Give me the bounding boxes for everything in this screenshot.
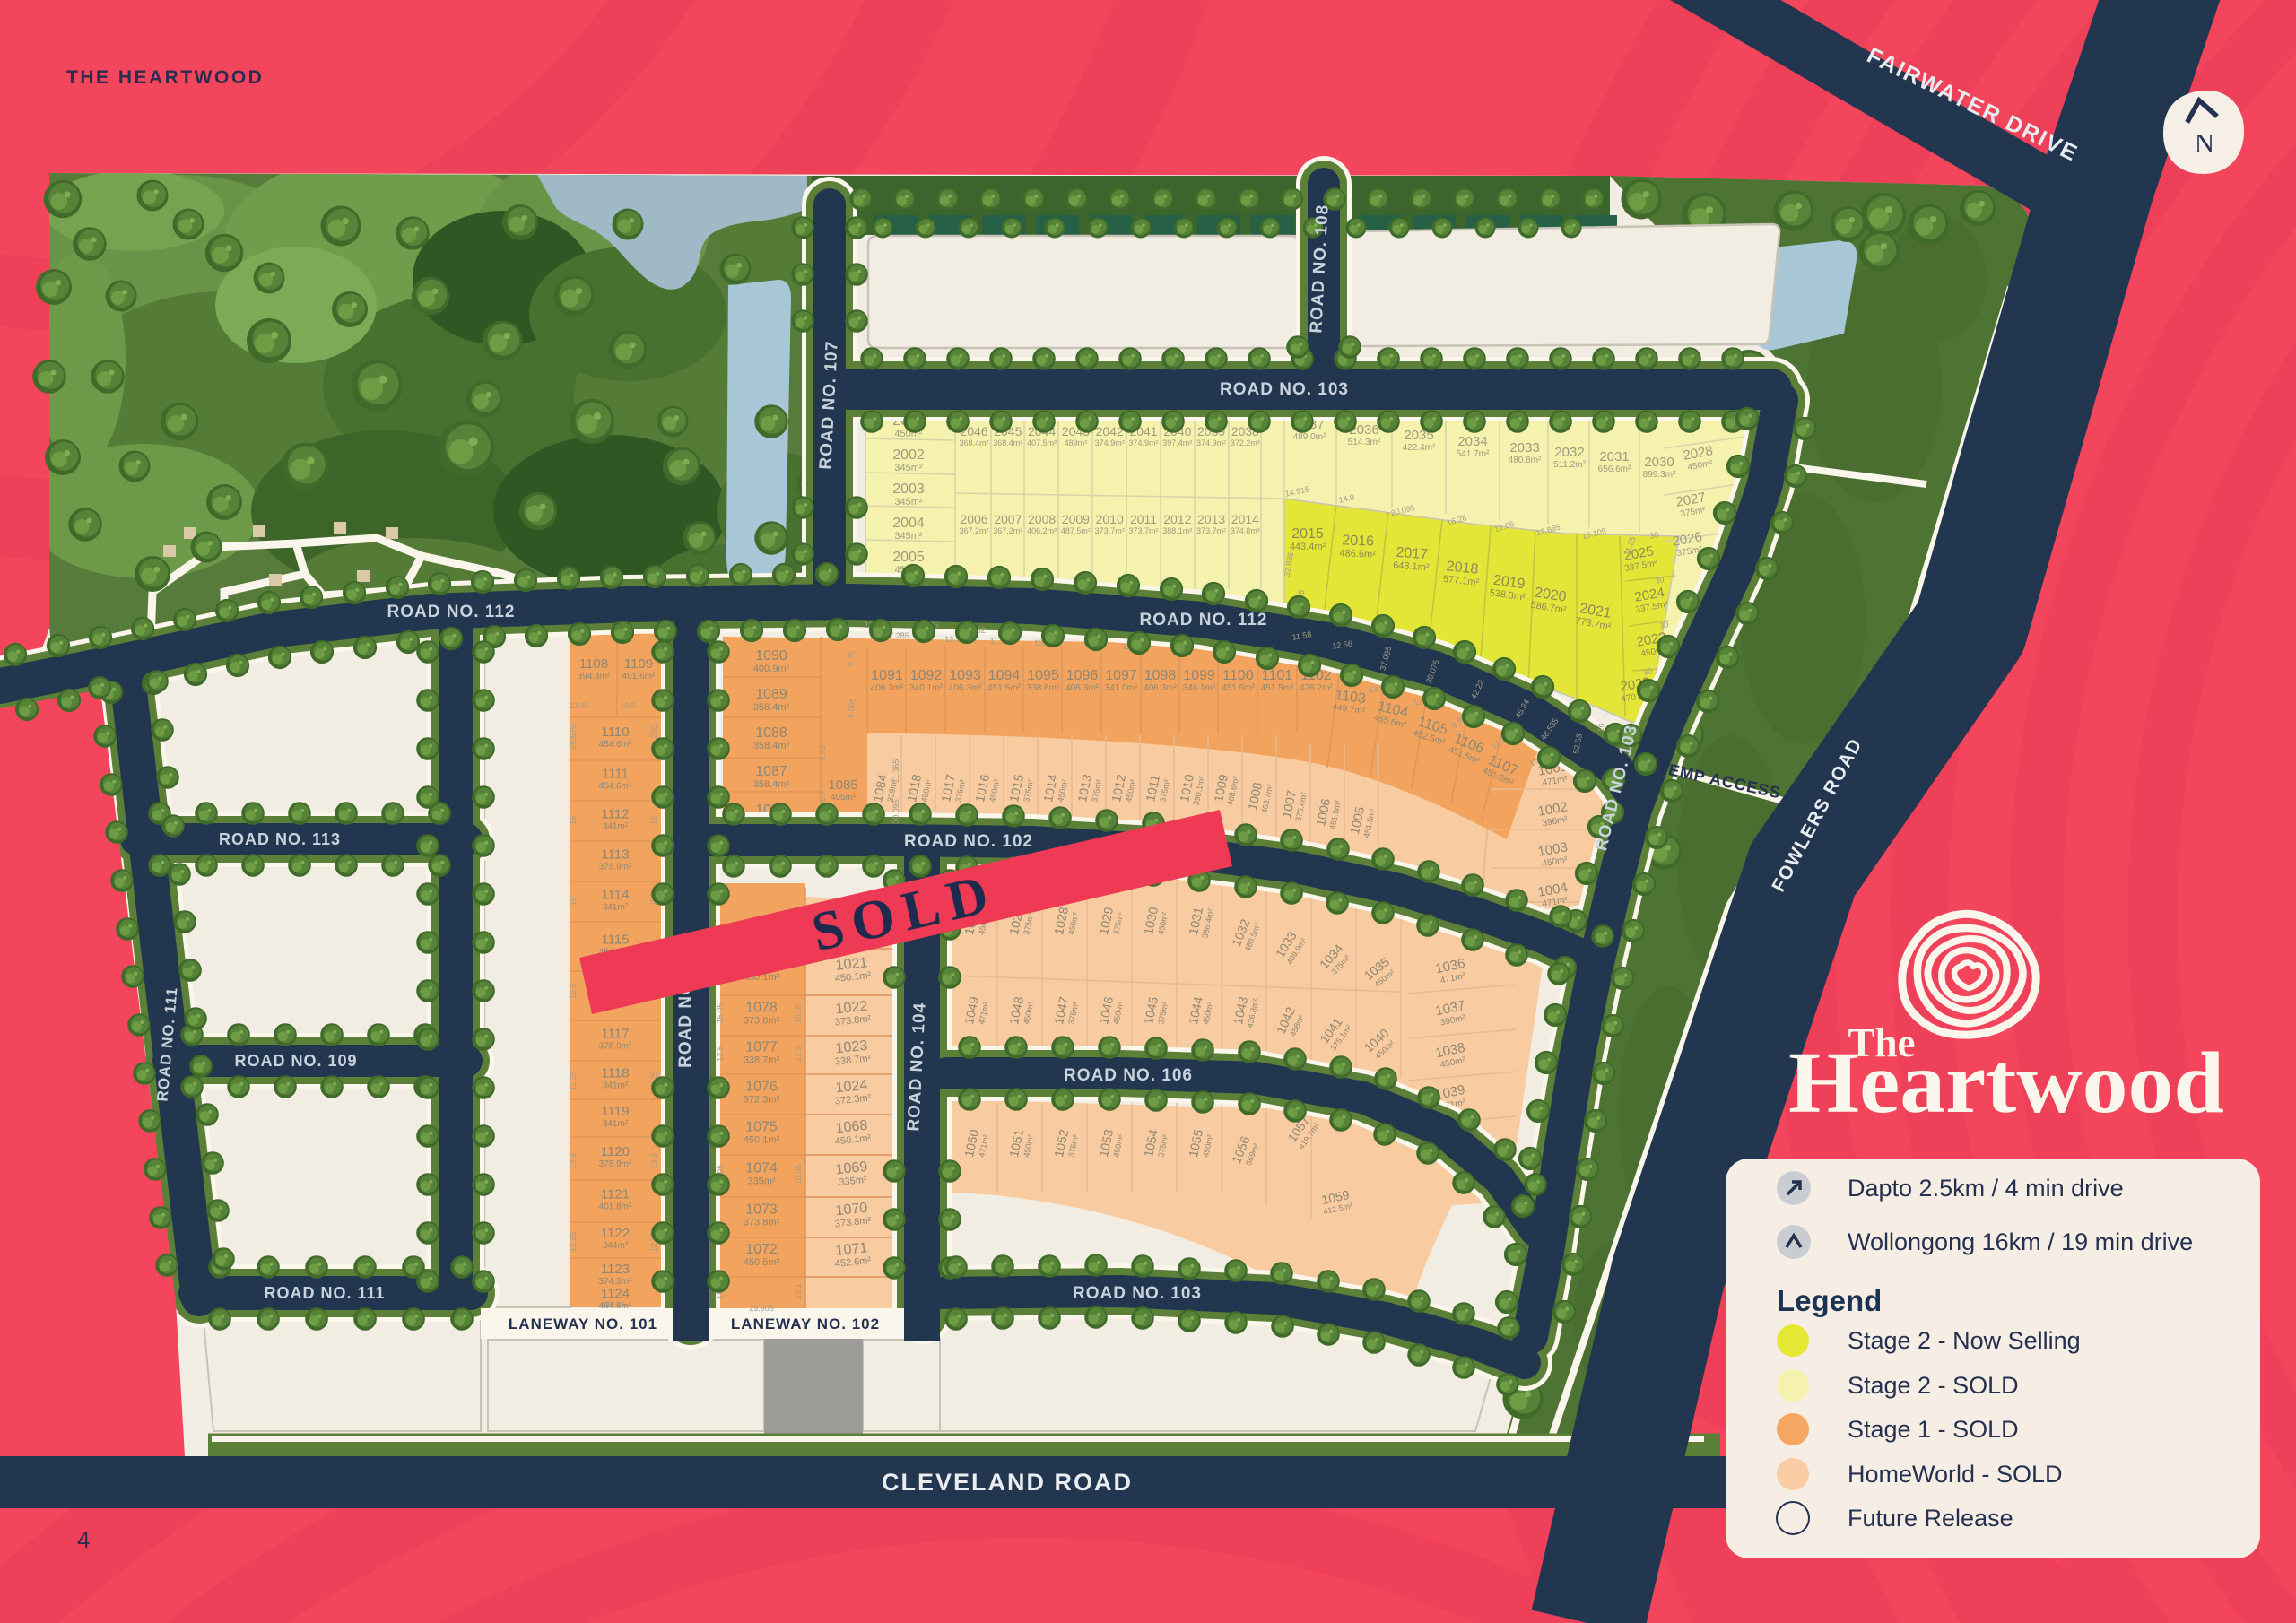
svg-text:368.4m²: 368.4m² xyxy=(959,438,988,447)
svg-text:374.9m²: 374.9m² xyxy=(1095,438,1125,447)
svg-text:1094: 1094 xyxy=(988,668,1021,683)
svg-text:THE HEARTWOOD: THE HEARTWOOD xyxy=(66,67,264,88)
svg-text:2034: 2034 xyxy=(1457,434,1487,449)
svg-text:514.3m²: 514.3m² xyxy=(1348,438,1381,447)
svg-text:1072: 1072 xyxy=(745,1242,778,1257)
svg-text:511.2m²: 511.2m² xyxy=(1553,460,1587,470)
svg-text:373.8m²: 373.8m² xyxy=(744,1218,780,1228)
svg-text:ROAD NO. 102: ROAD NO. 102 xyxy=(904,832,1033,851)
svg-text:1090: 1090 xyxy=(755,648,787,664)
svg-text:Stage 1 - SOLD: Stage 1 - SOLD xyxy=(1848,1416,2019,1443)
svg-text:400.9m²: 400.9m² xyxy=(753,664,790,674)
svg-text:13.81: 13.81 xyxy=(570,701,590,710)
svg-text:1119: 1119 xyxy=(601,1104,629,1119)
svg-text:368.4m²: 368.4m² xyxy=(993,438,1022,447)
svg-text:HomeWorld - SOLD: HomeWorld - SOLD xyxy=(1848,1461,2063,1488)
svg-text:406.3m²: 406.3m² xyxy=(1144,683,1177,693)
svg-text:12.5: 12.5 xyxy=(716,1046,725,1062)
svg-text:N: N xyxy=(2195,127,2214,159)
svg-text:401.8m²: 401.8m² xyxy=(599,1202,632,1212)
svg-text:340.1m²: 340.1m² xyxy=(909,683,943,693)
svg-text:CLEVELAND ROAD: CLEVELAND ROAD xyxy=(882,1469,1133,1496)
svg-text:341.0m²: 341.0m² xyxy=(1105,683,1138,693)
svg-text:Dapto 2.5km / 4 min drive: Dapto 2.5km / 4 min drive xyxy=(1848,1175,2124,1202)
svg-text:1123: 1123 xyxy=(601,1262,630,1277)
svg-text:338.7m²: 338.7m² xyxy=(744,1055,780,1066)
svg-text:450.5m²: 450.5m² xyxy=(744,1257,780,1268)
svg-text:341m²: 341m² xyxy=(603,1119,629,1129)
svg-text:12.5: 12.5 xyxy=(794,1046,803,1062)
svg-text:1122: 1122 xyxy=(601,1226,630,1241)
svg-text:341m²: 341m² xyxy=(603,822,629,832)
svg-text:ROAD NO. 112: ROAD NO. 112 xyxy=(1140,611,1268,629)
svg-text:372.3m²: 372.3m² xyxy=(744,1095,780,1106)
svg-text:Future Release: Future Release xyxy=(1848,1505,2013,1532)
svg-text:656.6m²: 656.6m² xyxy=(1598,464,1631,474)
svg-text:30.31: 30.31 xyxy=(605,1300,626,1309)
svg-text:1117: 1117 xyxy=(601,1027,629,1042)
svg-text:ROAD NO. 109: ROAD NO. 109 xyxy=(234,1052,357,1070)
svg-text:426.2m²: 426.2m² xyxy=(1300,683,1333,693)
svg-text:345m²: 345m² xyxy=(894,463,923,473)
svg-text:16.5: 16.5 xyxy=(620,701,636,710)
svg-text:2031: 2031 xyxy=(1599,449,1629,464)
svg-text:30: 30 xyxy=(1642,666,1653,677)
svg-text:1114: 1114 xyxy=(601,888,629,903)
svg-text:15: 15 xyxy=(569,897,578,906)
svg-text:451.5m²: 451.5m² xyxy=(1222,683,1255,693)
svg-text:345m²: 345m² xyxy=(894,497,923,508)
svg-text:15: 15 xyxy=(649,816,658,825)
svg-text:ROAD NO. 106: ROAD NO. 106 xyxy=(1064,1066,1193,1085)
svg-text:Wollongong 16km / 19 min drive: Wollongong 16km / 19 min drive xyxy=(1848,1228,2193,1255)
svg-text:4: 4 xyxy=(77,1526,90,1553)
svg-text:358.4m²: 358.4m² xyxy=(753,741,790,751)
svg-text:422.4m²: 422.4m² xyxy=(1403,443,1436,453)
svg-text:12.35: 12.35 xyxy=(569,1232,578,1253)
svg-text:1124: 1124 xyxy=(601,1287,630,1302)
svg-text:1115: 1115 xyxy=(601,933,629,948)
svg-text:15.05: 15.05 xyxy=(794,1003,803,1024)
svg-text:1113: 1113 xyxy=(601,847,629,863)
svg-text:541.7m²: 541.7m² xyxy=(1457,449,1490,459)
svg-text:358.4m²: 358.4m² xyxy=(753,702,790,713)
svg-text:450.1m²: 450.1m² xyxy=(744,1135,780,1146)
svg-text:15.1: 15.1 xyxy=(794,1283,803,1299)
svg-text:454.6m²: 454.6m² xyxy=(599,782,632,792)
svg-text:2016: 2016 xyxy=(1342,533,1374,549)
svg-text:480.8m²: 480.8m² xyxy=(1509,456,1542,465)
svg-text:2007: 2007 xyxy=(994,512,1022,526)
svg-text:1077: 1077 xyxy=(745,1040,778,1055)
svg-text:1118: 1118 xyxy=(601,1066,629,1081)
svg-text:406.3m²: 406.3m² xyxy=(871,683,904,693)
svg-text:13.3: 13.3 xyxy=(569,1153,578,1169)
svg-text:ROAD NO. 103: ROAD NO. 103 xyxy=(1073,1284,1202,1303)
svg-text:2005: 2005 xyxy=(892,550,925,565)
svg-text:1109: 1109 xyxy=(624,656,653,672)
svg-text:2014: 2014 xyxy=(1231,512,1259,526)
svg-text:15: 15 xyxy=(569,816,578,825)
svg-text:1089: 1089 xyxy=(755,687,787,702)
svg-text:30: 30 xyxy=(1654,575,1665,586)
svg-text:1110: 1110 xyxy=(601,725,629,740)
svg-text:LANEWAY NO. 101: LANEWAY NO. 101 xyxy=(509,1315,657,1332)
svg-text:397.4m²: 397.4m² xyxy=(1162,438,1192,447)
svg-text:489.0m²: 489.0m² xyxy=(1293,432,1326,442)
svg-text:373.7m²: 373.7m² xyxy=(1196,526,1226,535)
svg-text:367.2m²: 367.2m² xyxy=(993,526,1022,535)
svg-text:30: 30 xyxy=(1648,530,1659,541)
svg-text:443.4m²: 443.4m² xyxy=(1290,542,1326,552)
svg-text:374.9m²: 374.9m² xyxy=(1128,438,1158,447)
svg-text:1112: 1112 xyxy=(601,807,629,822)
svg-text:358.4m²: 358.4m² xyxy=(753,779,790,790)
svg-text:2015: 2015 xyxy=(1291,526,1324,542)
svg-text:29.905: 29.905 xyxy=(749,1304,774,1313)
svg-text:1096: 1096 xyxy=(1066,668,1099,683)
svg-text:15.05: 15.05 xyxy=(716,1003,725,1024)
svg-text:2009: 2009 xyxy=(1062,512,1090,526)
svg-text:2004: 2004 xyxy=(892,516,925,531)
svg-text:11.25: 11.25 xyxy=(569,1071,578,1090)
svg-text:2003: 2003 xyxy=(892,482,925,497)
svg-text:341m²: 341m² xyxy=(603,903,629,913)
svg-text:2013: 2013 xyxy=(1197,512,1225,526)
svg-text:30: 30 xyxy=(1658,620,1669,630)
svg-text:406.3m²: 406.3m² xyxy=(949,683,982,693)
svg-text:1098: 1098 xyxy=(1144,668,1177,683)
svg-text:407.5m²: 407.5m² xyxy=(1027,438,1057,447)
svg-text:LANEWAY NO. 102: LANEWAY NO. 102 xyxy=(731,1315,880,1332)
svg-text:2012: 2012 xyxy=(1163,512,1191,526)
svg-text:486.6m²: 486.6m² xyxy=(1339,548,1376,560)
svg-text:394.4m²: 394.4m² xyxy=(578,672,611,681)
svg-text:Heartwood: Heartwood xyxy=(1788,1035,2224,1132)
svg-text:1121: 1121 xyxy=(601,1187,630,1202)
svg-text:451.5m²: 451.5m² xyxy=(987,683,1021,693)
svg-text:ROAD NO. 111: ROAD NO. 111 xyxy=(264,1284,385,1302)
svg-text:489m²: 489m² xyxy=(1065,438,1088,447)
svg-text:388.1m²: 388.1m² xyxy=(1162,526,1192,535)
svg-text:374.8m²: 374.8m² xyxy=(1231,526,1260,535)
svg-text:ROAD NO. 113: ROAD NO. 113 xyxy=(219,830,341,848)
svg-text:1073: 1073 xyxy=(745,1202,778,1218)
svg-text:1088: 1088 xyxy=(755,725,787,741)
svg-text:1097: 1097 xyxy=(1105,668,1137,683)
svg-text:1111: 1111 xyxy=(602,767,629,782)
svg-text:451.5m²: 451.5m² xyxy=(1261,683,1294,693)
svg-text:Stage 2 - SOLD: Stage 2 - SOLD xyxy=(1848,1372,2019,1399)
svg-text:1074: 1074 xyxy=(745,1161,778,1176)
svg-text:335m²: 335m² xyxy=(747,1176,776,1187)
svg-text:ROAD NO. 112: ROAD NO. 112 xyxy=(387,603,516,621)
svg-text:1100: 1100 xyxy=(1222,668,1254,683)
svg-text:406.3m²: 406.3m² xyxy=(1065,683,1099,693)
svg-text:338.6m²: 338.6m² xyxy=(1027,683,1060,693)
svg-text:28.575: 28.575 xyxy=(569,725,578,750)
svg-text:Stage 2 - Now Selling: Stage 2 - Now Selling xyxy=(1848,1327,2081,1354)
svg-text:1093: 1093 xyxy=(949,668,981,683)
svg-text:1120: 1120 xyxy=(601,1144,630,1159)
svg-text:899.3m²: 899.3m² xyxy=(1643,470,1676,480)
svg-text:378.9m²: 378.9m² xyxy=(599,863,632,872)
svg-text:373.7m²: 373.7m² xyxy=(1128,526,1158,535)
svg-text:345m²: 345m² xyxy=(894,531,923,542)
svg-text:378.9m²: 378.9m² xyxy=(599,1159,632,1169)
svg-text:ROAD NO. 103: ROAD NO. 103 xyxy=(1220,380,1349,399)
svg-text:12.5: 12.5 xyxy=(569,983,578,999)
svg-text:11.365: 11.365 xyxy=(891,759,900,784)
svg-text:15.05: 15.05 xyxy=(794,1165,803,1185)
svg-text:461.6m²: 461.6m² xyxy=(622,672,656,681)
svg-text:1087: 1087 xyxy=(755,764,787,779)
svg-text:372.2m²: 372.2m² xyxy=(1231,438,1260,447)
svg-text:1092: 1092 xyxy=(910,668,943,683)
svg-text:1085: 1085 xyxy=(828,777,857,793)
svg-text:1099: 1099 xyxy=(1183,668,1215,683)
svg-text:344m²: 344m² xyxy=(603,1241,629,1251)
svg-text:373.7m²: 373.7m² xyxy=(1095,526,1125,535)
svg-text:1108: 1108 xyxy=(579,656,608,672)
svg-text:2006: 2006 xyxy=(960,512,987,526)
svg-text:341m²: 341m² xyxy=(603,1081,629,1091)
svg-text:2010: 2010 xyxy=(1096,512,1124,526)
svg-text:Legend: Legend xyxy=(1777,1284,1882,1317)
svg-text:374.3m²: 374.3m² xyxy=(599,1277,632,1287)
svg-text:373.8m²: 373.8m² xyxy=(744,1016,780,1027)
svg-text:2033: 2033 xyxy=(1509,440,1539,456)
svg-text:2011: 2011 xyxy=(1130,512,1157,526)
svg-text:2032: 2032 xyxy=(1554,445,1584,460)
svg-text:8.75: 8.75 xyxy=(818,745,827,761)
svg-text:2002: 2002 xyxy=(892,447,925,463)
svg-text:1078: 1078 xyxy=(745,1001,778,1016)
svg-text:406.2m²: 406.2m² xyxy=(1027,526,1057,535)
svg-text:367.2m²: 367.2m² xyxy=(959,526,988,535)
svg-text:405m²: 405m² xyxy=(831,793,857,803)
svg-text:346.1m²: 346.1m² xyxy=(1183,683,1216,693)
svg-text:2042: 2042 xyxy=(1096,424,1124,438)
svg-text:2030: 2030 xyxy=(1644,455,1674,470)
svg-text:1095: 1095 xyxy=(1027,668,1059,683)
svg-text:13.3: 13.3 xyxy=(649,1153,658,1169)
svg-text:1101: 1101 xyxy=(1262,668,1293,683)
svg-text:374.9m²: 374.9m² xyxy=(1196,438,1226,447)
svg-text:454.6m²: 454.6m² xyxy=(599,740,632,750)
svg-text:378.9m²: 378.9m² xyxy=(599,1042,632,1052)
svg-text:30.095: 30.095 xyxy=(891,799,900,824)
svg-text:487.5m²: 487.5m² xyxy=(1061,526,1091,535)
svg-text:2008: 2008 xyxy=(1028,512,1056,526)
svg-text:1091: 1091 xyxy=(871,668,903,683)
svg-text:1075: 1075 xyxy=(745,1120,778,1135)
svg-text:1076: 1076 xyxy=(745,1080,778,1095)
